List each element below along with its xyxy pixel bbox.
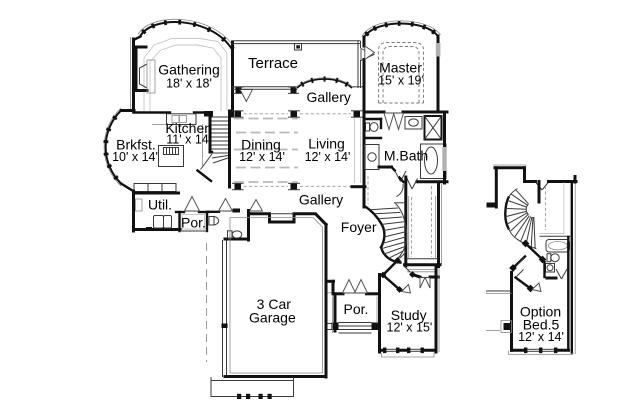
svg-text:11' x 14': 11' x 14' (166, 133, 211, 147)
svg-text:12' x 14': 12' x 14' (518, 330, 564, 344)
svg-text:Garage: Garage (249, 310, 296, 326)
svg-text:Por.: Por. (181, 215, 206, 231)
svg-text:Util.: Util. (148, 197, 172, 213)
svg-text:12' x 14': 12' x 14' (305, 150, 351, 164)
svg-text:10' x 14': 10' x 14' (112, 150, 158, 164)
svg-text:Gallery: Gallery (299, 192, 343, 208)
svg-text:Gathering: Gathering (158, 62, 219, 78)
svg-text:12' x 14': 12' x 14' (239, 150, 285, 164)
svg-text:Por.: Por. (344, 301, 369, 317)
svg-text:Foyer: Foyer (341, 219, 377, 235)
svg-text:15' x 19': 15' x 19' (378, 74, 424, 88)
svg-text:M.Bath: M.Bath (384, 148, 428, 164)
svg-text:Terrace: Terrace (248, 55, 298, 72)
svg-text:12' x 15': 12' x 15' (387, 321, 433, 335)
svg-text:18' x 18': 18' x 18' (166, 77, 212, 91)
svg-text:Gallery: Gallery (307, 89, 351, 105)
